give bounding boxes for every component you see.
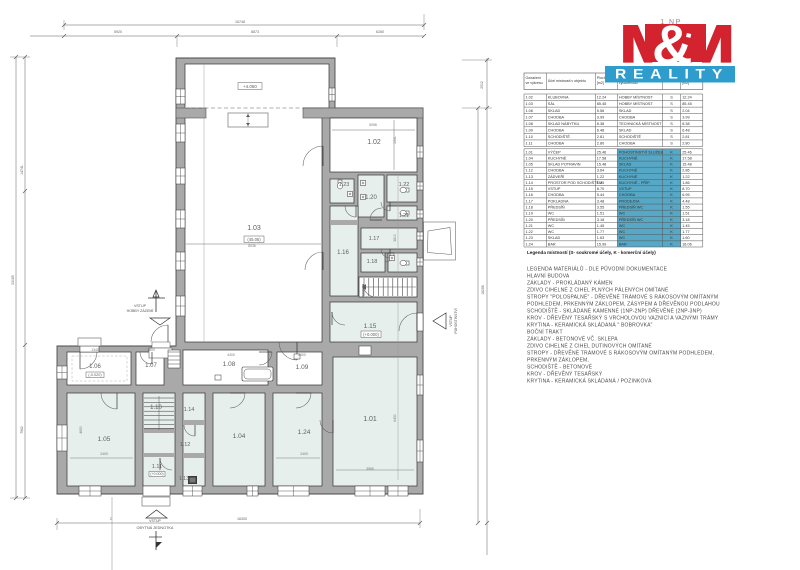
svg-text:8.70: 8.70 bbox=[597, 187, 604, 191]
svg-text:K: K bbox=[670, 187, 673, 191]
svg-text:16300: 16300 bbox=[237, 517, 247, 521]
svg-text:WC: WC bbox=[548, 212, 555, 216]
svg-text:LEGENDA MATERIÁLŮ - DLE PŮVODN: LEGENDA MATERIÁLŮ - DLE PŮVODNÍ DOKUMENT… bbox=[527, 266, 668, 273]
svg-text:CHODBA: CHODBA bbox=[619, 142, 636, 146]
svg-text:2400: 2400 bbox=[298, 353, 306, 357]
svg-text:CHODBA: CHODBA bbox=[619, 115, 636, 119]
svg-text:VÝČEP: VÝČEP bbox=[548, 149, 561, 154]
svg-text:85.45: 85.45 bbox=[597, 102, 607, 106]
svg-text:1.17: 1.17 bbox=[369, 236, 380, 242]
svg-text:17.58: 17.58 bbox=[682, 156, 692, 160]
svg-text:1.22: 1.22 bbox=[526, 230, 533, 234]
svg-text:PROSTOR POD SCHODIŠTĚM: PROSTOR POD SCHODIŠTĚM bbox=[548, 180, 602, 185]
svg-text:S: S bbox=[670, 142, 673, 146]
svg-text:HOBBY ZÁZEMÍ: HOBBY ZÁZEMÍ bbox=[127, 309, 154, 313]
svg-text:15.48: 15.48 bbox=[682, 163, 692, 167]
svg-text:1.07: 1.07 bbox=[145, 363, 157, 369]
svg-text:ZDIVO CIHELNÉ Z CIHEL PLNÝCH P: ZDIVO CIHELNÉ Z CIHEL PLNÝCH PÁLENÝCH OM… bbox=[527, 287, 669, 294]
svg-text:KROV - DŘEVĚNÝ TESAŘSKÝ S VRCH: KROV - DŘEVĚNÝ TESAŘSKÝ S VRCHOLOVOU VAZ… bbox=[527, 314, 719, 322]
svg-text:1.06: 1.06 bbox=[89, 364, 101, 370]
svg-text:2400: 2400 bbox=[300, 452, 308, 456]
svg-text:ve výkresu: ve výkresu bbox=[526, 81, 543, 85]
svg-text:1.77: 1.77 bbox=[682, 230, 689, 234]
svg-text:1.55: 1.55 bbox=[682, 206, 689, 210]
svg-text:WC: WC bbox=[548, 230, 555, 234]
svg-text:1.77: 1.77 bbox=[597, 230, 604, 234]
svg-text:CHODBA: CHODBA bbox=[619, 193, 636, 197]
svg-text:3810: 3810 bbox=[393, 234, 397, 242]
svg-text:2.81: 2.81 bbox=[597, 135, 604, 139]
svg-text:WC: WC bbox=[619, 236, 626, 240]
svg-text:1.22: 1.22 bbox=[597, 175, 604, 179]
svg-text:&: & bbox=[652, 13, 692, 76]
svg-text:1.14: 1.14 bbox=[526, 181, 533, 185]
svg-text:1.86: 1.86 bbox=[682, 181, 689, 185]
svg-text:1.01: 1.01 bbox=[526, 150, 533, 154]
svg-text:SCHODIŠTĚ: SCHODIŠTĚ bbox=[548, 134, 571, 139]
svg-text:SKLAD: SKLAD bbox=[619, 163, 632, 167]
svg-text:K: K bbox=[670, 156, 673, 160]
svg-text:SKLAD: SKLAD bbox=[619, 109, 632, 113]
svg-text:S: S bbox=[670, 109, 673, 113]
svg-text:K: K bbox=[670, 242, 673, 246]
svg-text:8.70: 8.70 bbox=[682, 187, 689, 191]
svg-text:1.13: 1.13 bbox=[526, 175, 533, 179]
svg-text:7962: 7962 bbox=[20, 426, 24, 434]
svg-text:ZÁDVEŘÍ: ZÁDVEŘÍ bbox=[548, 174, 565, 179]
svg-text:1.11: 1.11 bbox=[526, 142, 533, 146]
svg-text:K: K bbox=[670, 163, 673, 167]
svg-text:KUCHYNĚ: KUCHYNĚ bbox=[619, 174, 638, 179]
svg-text:KUCHYNĚ: KUCHYNĚ bbox=[619, 155, 638, 160]
svg-text:1.13: 1.13 bbox=[179, 476, 189, 482]
svg-text:1340: 1340 bbox=[91, 348, 99, 352]
svg-text:PRODEJNA: PRODEJNA bbox=[619, 199, 640, 203]
svg-text:1.51: 1.51 bbox=[682, 212, 689, 216]
svg-text:8.38: 8.38 bbox=[682, 122, 689, 126]
svg-text:PŘEDSÍŇ WC: PŘEDSÍŇ WC bbox=[619, 205, 644, 210]
svg-text:ZÁKLADY - PROKLÁDANÝ KÁMEN: ZÁKLADY - PROKLÁDANÝ KÁMEN bbox=[527, 280, 613, 287]
svg-text:25.46: 25.46 bbox=[597, 150, 607, 154]
svg-text:SKLAD: SKLAD bbox=[619, 128, 632, 132]
svg-text:2400: 2400 bbox=[100, 452, 108, 456]
svg-text:SCHODIŠTĚ - BETONOVÉ: SCHODIŠTĚ - BETONOVÉ bbox=[527, 363, 593, 371]
svg-text:VSTUP: VSTUP bbox=[449, 315, 453, 327]
svg-text:HOBBY MÍSTNOST: HOBBY MÍSTNOST bbox=[619, 96, 654, 100]
svg-text:1.18: 1.18 bbox=[526, 206, 533, 210]
svg-text:6.95: 6.95 bbox=[682, 193, 689, 197]
svg-text:1.04: 1.04 bbox=[233, 433, 246, 440]
svg-text:Legenda místností (S- soukromé: Legenda místností (S- soukromé účely, K … bbox=[527, 250, 656, 255]
svg-text:1.23: 1.23 bbox=[339, 182, 350, 188]
svg-text:16748: 16748 bbox=[235, 20, 245, 24]
svg-text:4400: 4400 bbox=[227, 353, 235, 357]
svg-text:1.45: 1.45 bbox=[597, 224, 604, 228]
svg-text:PŘEDSÍŇ: PŘEDSÍŇ bbox=[548, 217, 565, 222]
svg-text:HOBBY MÍSTNOST: HOBBY MÍSTNOST bbox=[619, 102, 654, 106]
svg-text:3.99: 3.99 bbox=[682, 115, 689, 119]
svg-text:BAR: BAR bbox=[619, 242, 627, 246]
svg-text:CHODBA: CHODBA bbox=[548, 128, 565, 132]
svg-text:1.10: 1.10 bbox=[150, 405, 162, 411]
svg-text:2502: 2502 bbox=[480, 81, 484, 89]
svg-text:PŘEDSÍŇ: PŘEDSÍŇ bbox=[548, 205, 565, 210]
svg-text:CHODBA: CHODBA bbox=[548, 193, 565, 197]
svg-text:SKLAD NÁBYTKU: SKLAD NÁBYTKU bbox=[548, 122, 580, 126]
svg-text:SCHODIŠTĚ - SKLÁDANÉ KAMENNÉ (: SCHODIŠTĚ - SKLÁDANÉ KAMENNÉ (1NP-2NP) D… bbox=[527, 307, 702, 315]
svg-text:1.17: 1.17 bbox=[526, 199, 533, 203]
svg-text:SKLAD: SKLAD bbox=[548, 109, 561, 113]
svg-text:1.18: 1.18 bbox=[367, 259, 378, 265]
svg-text:WC: WC bbox=[619, 224, 626, 228]
svg-text:1.16: 1.16 bbox=[526, 193, 533, 197]
svg-text:(45.06): (45.06) bbox=[247, 237, 261, 242]
svg-text:1.08: 1.08 bbox=[526, 122, 533, 126]
svg-text:SKLAD POTRAVIN: SKLAD POTRAVIN bbox=[548, 163, 581, 167]
svg-text:Účel místnosti v objektu: Účel místnosti v objektu bbox=[548, 78, 586, 83]
svg-text:1.03: 1.03 bbox=[526, 102, 533, 106]
svg-text:2.04: 2.04 bbox=[682, 109, 689, 113]
svg-text:1.03: 1.03 bbox=[247, 225, 261, 232]
svg-text:K: K bbox=[670, 193, 673, 197]
svg-text:VSTUP: VSTUP bbox=[134, 304, 147, 308]
svg-text:VSTUP: VSTUP bbox=[619, 187, 632, 191]
svg-text:K: K bbox=[670, 181, 673, 185]
svg-text:SCHODIŠTĚ: SCHODIŠTĚ bbox=[619, 134, 642, 139]
svg-text:5.44: 5.44 bbox=[597, 193, 604, 197]
svg-text:1.02: 1.02 bbox=[526, 96, 533, 100]
svg-text:2441: 2441 bbox=[393, 136, 397, 144]
svg-text:STROPY - DŘEVĚNÉ TRÁMOVÉ S RÁK: STROPY - DŘEVĚNÉ TRÁMOVÉ S RÁKOSOVÝM OMÍ… bbox=[527, 349, 714, 357]
svg-text:VSTUP: VSTUP bbox=[548, 187, 561, 191]
svg-text:1.21: 1.21 bbox=[399, 213, 409, 219]
svg-text:WC: WC bbox=[619, 230, 626, 234]
svg-text:KRYTINA - KERAMICKÁ SKLÁDANÁ ": KRYTINA - KERAMICKÁ SKLÁDANÁ " BOBROVKA" bbox=[527, 322, 653, 329]
svg-text:1.20: 1.20 bbox=[365, 195, 377, 201]
svg-text:3.64: 3.64 bbox=[597, 169, 604, 173]
svg-text:5920: 5920 bbox=[114, 30, 122, 34]
svg-text:8873: 8873 bbox=[251, 30, 259, 34]
svg-text:15.99: 15.99 bbox=[597, 242, 607, 246]
svg-text:K: K bbox=[670, 212, 673, 216]
svg-text:POKLADNA: POKLADNA bbox=[548, 199, 569, 203]
svg-text:2.86: 2.86 bbox=[682, 169, 689, 173]
svg-text:ZDIVO CIHELNÉ Z CIHEL DUTINOVÝ: ZDIVO CIHELNÉ Z CIHEL DUTINOVÝCH OMÍTANÉ bbox=[527, 343, 652, 350]
svg-text:1.20: 1.20 bbox=[526, 218, 533, 222]
svg-text:3.55: 3.55 bbox=[597, 206, 604, 210]
svg-text:1.15: 1.15 bbox=[364, 323, 377, 330]
svg-text:2.80: 2.80 bbox=[597, 142, 604, 146]
svg-text:SKLAD: SKLAD bbox=[548, 236, 561, 240]
svg-text:KROV - DŘEVĚNÝ TESAŘSKÝ: KROV - DŘEVĚNÝ TESAŘSKÝ bbox=[527, 370, 603, 378]
svg-text:1.12: 1.12 bbox=[526, 169, 533, 173]
svg-text:K: K bbox=[670, 199, 673, 203]
svg-text:1.51: 1.51 bbox=[597, 212, 604, 216]
svg-text:1.11: 1.11 bbox=[152, 464, 162, 470]
svg-text:1.16: 1.16 bbox=[337, 250, 349, 256]
svg-text:1.08: 1.08 bbox=[223, 361, 236, 368]
svg-text:1.04: 1.04 bbox=[526, 156, 533, 160]
svg-text:1.23: 1.23 bbox=[526, 236, 533, 240]
svg-text:KUCHYNĚ: KUCHYNĚ bbox=[548, 155, 567, 160]
svg-text:5.56: 5.56 bbox=[597, 109, 604, 113]
svg-text:BOČNÍ TRAKT: BOČNÍ TRAKT bbox=[527, 329, 563, 336]
svg-text:1.01: 1.01 bbox=[363, 416, 377, 423]
svg-text:WC: WC bbox=[619, 212, 626, 216]
svg-text:WC: WC bbox=[548, 224, 555, 228]
svg-text:8.38: 8.38 bbox=[597, 122, 604, 126]
svg-text:OBYTNÁ JEDNOTKA: OBYTNÁ JEDNOTKA bbox=[137, 526, 174, 530]
svg-text:BAR: BAR bbox=[548, 242, 556, 246]
svg-text:K: K bbox=[670, 175, 673, 179]
svg-text:K: K bbox=[670, 206, 673, 210]
svg-text:(-0.020): (-0.020) bbox=[88, 373, 102, 377]
svg-text:1.14: 1.14 bbox=[184, 407, 195, 413]
svg-text:1.19: 1.19 bbox=[526, 212, 533, 216]
svg-text:K: K bbox=[670, 218, 673, 222]
svg-text:15.48: 15.48 bbox=[597, 163, 607, 167]
svg-text:1.15: 1.15 bbox=[526, 187, 533, 191]
svg-text:HLAVNÍ BUDOVA: HLAVNÍ BUDOVA bbox=[527, 273, 570, 280]
svg-text:Označení: Označení bbox=[526, 76, 541, 80]
svg-text:3585: 3585 bbox=[366, 467, 374, 471]
svg-text:(+0.000): (+0.000) bbox=[363, 332, 379, 337]
svg-text:TECHNICKÁ MÍSTNOST: TECHNICKÁ MÍSTNOST bbox=[619, 122, 662, 126]
svg-text:1.45: 1.45 bbox=[682, 224, 689, 228]
svg-text:K: K bbox=[670, 236, 673, 240]
svg-text:1.21: 1.21 bbox=[526, 224, 533, 228]
svg-text:6280: 6280 bbox=[376, 30, 384, 34]
svg-text:K: K bbox=[670, 230, 673, 234]
svg-text:3.18: 3.18 bbox=[597, 218, 604, 222]
svg-text:1.12: 1.12 bbox=[180, 442, 191, 448]
svg-text:1.10: 1.10 bbox=[526, 135, 533, 139]
svg-text:1.07: 1.07 bbox=[526, 115, 533, 119]
svg-text:1.24: 1.24 bbox=[298, 429, 311, 436]
svg-text:KUCHYNĚ - PŘÍP.: KUCHYNĚ - PŘÍP. bbox=[619, 180, 650, 185]
svg-text:K: K bbox=[670, 169, 673, 173]
svg-text:14741: 14741 bbox=[20, 165, 24, 175]
svg-text:1.05: 1.05 bbox=[98, 436, 111, 443]
svg-text:[m2]: [m2] bbox=[597, 81, 604, 85]
svg-text:POHOSTINSTVÍ: POHOSTINSTVÍ bbox=[454, 308, 458, 333]
svg-text:POHOSTINSTVÍ SLUŽEB: POHOSTINSTVÍ SLUŽEB bbox=[619, 149, 664, 154]
svg-text:3.18: 3.18 bbox=[682, 218, 689, 222]
svg-text:85.45: 85.45 bbox=[682, 102, 692, 106]
svg-text:12.24: 12.24 bbox=[682, 96, 692, 100]
svg-text:CHODBA: CHODBA bbox=[548, 142, 565, 146]
svg-text:ZÁKLADY - BETONOVÉ VČ. SKLEPA: ZÁKLADY - BETONOVÉ VČ. SKLEPA bbox=[527, 336, 618, 343]
svg-text:1.05: 1.05 bbox=[526, 163, 533, 167]
svg-text:6.48: 6.48 bbox=[682, 128, 689, 132]
svg-text:6.48: 6.48 bbox=[597, 128, 604, 132]
svg-text:K: K bbox=[670, 150, 673, 154]
svg-text:S: S bbox=[670, 115, 673, 119]
svg-text:4650: 4650 bbox=[79, 426, 83, 434]
svg-text:23085: 23085 bbox=[11, 275, 15, 285]
svg-text:KLUBOVNA: KLUBOVNA bbox=[548, 96, 569, 100]
svg-text:STROPY "POLOSPALNÉ" - DŘEVĚNÉ: STROPY "POLOSPALNÉ" - DŘEVĚNÉ TRÁMOVÉ S … bbox=[527, 293, 718, 301]
svg-text:25.46: 25.46 bbox=[682, 150, 692, 154]
svg-text:SÁL: SÁL bbox=[548, 102, 555, 106]
svg-text:S: S bbox=[670, 135, 673, 139]
svg-text:1.24: 1.24 bbox=[526, 242, 533, 246]
svg-text:1.22: 1.22 bbox=[682, 175, 689, 179]
svg-text:18286: 18286 bbox=[481, 285, 485, 295]
svg-text:1.22: 1.22 bbox=[399, 182, 410, 188]
svg-text:S: S bbox=[670, 128, 673, 132]
svg-text:5058: 5058 bbox=[369, 123, 377, 127]
svg-text:8036: 8036 bbox=[248, 244, 256, 248]
svg-text:3.99: 3.99 bbox=[597, 115, 604, 119]
svg-text:3.48: 3.48 bbox=[597, 199, 604, 203]
svg-text:6430: 6430 bbox=[393, 414, 397, 422]
svg-text:1.60: 1.60 bbox=[682, 236, 689, 240]
svg-text:PŘEDSÍŇ WC: PŘEDSÍŇ WC bbox=[619, 217, 644, 222]
svg-text:12.24: 12.24 bbox=[597, 96, 607, 100]
svg-text:2.80: 2.80 bbox=[682, 142, 689, 146]
svg-text:KRYTINA - KERAMICKÁ SKLÁDANÁ /: KRYTINA - KERAMICKÁ SKLÁDANÁ / POZINKOVÁ bbox=[527, 378, 652, 385]
svg-text:S: S bbox=[670, 96, 673, 100]
svg-text:1.02: 1.02 bbox=[367, 139, 381, 146]
svg-text:PODHLEDEM, PRKENNÝM ZÁKLOPEM,: PODHLEDEM, PRKENNÝM ZÁKLOPEM, ZÁSYPEM A … bbox=[527, 300, 720, 308]
svg-text:2.81: 2.81 bbox=[682, 135, 689, 139]
svg-text:16.06: 16.06 bbox=[682, 242, 692, 246]
svg-text:4.48: 4.48 bbox=[682, 199, 689, 203]
svg-text:+4.050: +4.050 bbox=[243, 84, 257, 89]
svg-text:(+0.000): (+0.000) bbox=[150, 472, 163, 476]
svg-text:1800: 1800 bbox=[147, 348, 155, 352]
svg-text:17.58: 17.58 bbox=[597, 156, 607, 160]
svg-text:S: S bbox=[670, 122, 673, 126]
svg-text:KUCHYNĚ: KUCHYNĚ bbox=[619, 168, 638, 173]
svg-text:1.09: 1.09 bbox=[526, 128, 533, 132]
svg-text:1.35: 1.35 bbox=[597, 181, 604, 185]
svg-text:K: K bbox=[670, 224, 673, 228]
svg-text:PRKENNÝM ZÁKLOPEM,: PRKENNÝM ZÁKLOPEM, bbox=[527, 357, 589, 364]
svg-text:CHODBA: CHODBA bbox=[548, 169, 565, 173]
svg-text:S: S bbox=[670, 102, 673, 106]
svg-text:1.63: 1.63 bbox=[597, 236, 604, 240]
svg-text:1.09: 1.09 bbox=[296, 364, 309, 371]
svg-text:CHODBA: CHODBA bbox=[548, 115, 565, 119]
svg-text:VSTUP: VSTUP bbox=[149, 519, 161, 523]
svg-text:1.06: 1.06 bbox=[526, 109, 533, 113]
